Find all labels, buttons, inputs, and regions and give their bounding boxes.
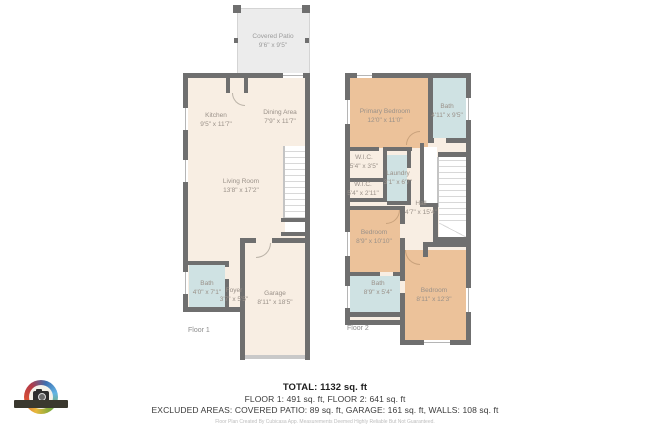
- window: [466, 98, 471, 120]
- floor-plan-page: Covered Patio 9'6" x 9'5" Kitchen 9'5" x…: [0, 0, 650, 433]
- window: [345, 286, 350, 308]
- floor-areas-text: FLOOR 1: 491 sq. ft, FLOOR 2: 641 sq. ft: [0, 394, 650, 404]
- exterior-wall: [305, 73, 310, 360]
- room-name: Kitchen: [200, 112, 232, 121]
- bath3-door-gap: [380, 272, 393, 276]
- hall-stair-wall: [420, 143, 424, 205]
- bath2-door-gap: [434, 138, 446, 143]
- company-logo-badge: [14, 380, 68, 426]
- room-label-foyer: Foyer 3'7" x 5'5": [220, 287, 248, 305]
- room-dims: 8'9" x 10'10": [356, 238, 392, 247]
- stair-winder: [439, 223, 466, 237]
- bedroom-bath-wall: [345, 272, 404, 276]
- room-dims: 4'7" x 15'4": [405, 209, 437, 218]
- room-label-living-room: Living Room 13'8" x 17'2": [223, 178, 259, 196]
- window: [183, 272, 188, 294]
- room-name: Primary Bedroom: [360, 108, 411, 117]
- room-dims: 3'7" x 5'5": [220, 296, 248, 305]
- window: [466, 288, 471, 312]
- room-dims: 9'6" x 9'5": [252, 42, 293, 51]
- logo-banner: [14, 400, 68, 408]
- window: [345, 100, 350, 124]
- room-dims: 8'11" x 12'3": [416, 296, 451, 305]
- room-label-hall: Hall 4'7" x 15'4": [405, 200, 437, 218]
- room-dims: 4'0" x 7'1": [193, 289, 221, 298]
- room-dims: 9'5" x 11'7": [200, 121, 232, 130]
- total-area-text: TOTAL: 1132 sq. ft: [0, 382, 650, 393]
- room-dims: 5'4" x 3'5": [350, 163, 378, 172]
- patio-post: [234, 38, 238, 43]
- room-label-kitchen: Kitchen 9'5" x 11'7": [200, 112, 232, 130]
- room-dims: 5'4" x 2'11": [347, 190, 379, 199]
- room-label-wic2: W.I.C. 5'4" x 2'11": [347, 181, 379, 199]
- room-dims: 12'0" x 11'0": [360, 117, 411, 126]
- room-name: Covered Patio: [252, 33, 293, 42]
- entry-wall-stub: [226, 78, 230, 93]
- room-name: Bedroom: [356, 229, 392, 238]
- staircase-floor1: [285, 146, 305, 220]
- room-label-bedroom2: Bedroom 8'11" x 12'3": [416, 287, 451, 305]
- staircase-floor2: [439, 155, 466, 223]
- room-dims: 7'9" x 11'7": [263, 118, 297, 127]
- floor2-tag: Floor 2: [347, 325, 369, 332]
- garage-door: [245, 355, 305, 359]
- patio-post: [305, 38, 309, 43]
- room-label-bedroom-mid: Bedroom 8'9" x 10'10": [356, 229, 392, 247]
- room-dims: 8'11" x 18'5": [257, 299, 292, 308]
- exterior-wall: [183, 307, 244, 312]
- bath3-door-gap: [400, 281, 405, 293]
- room-label-laundry: Laundry 3'1" x 6'7": [384, 170, 412, 188]
- room-label-bath3: Bath 8'9" x 5'4": [364, 280, 392, 298]
- room-name: Foyer: [220, 287, 248, 296]
- bedroom2-top-wall: [423, 242, 471, 247]
- window: [424, 340, 450, 345]
- room-name: Laundry: [384, 170, 412, 179]
- bath1-wall: [187, 261, 229, 265]
- room-name: Dining Area: [263, 109, 297, 118]
- room-label-primary-bedroom: Primary Bedroom 12'0" x 11'0": [360, 108, 411, 126]
- room-label-bath1: Bath 4'0" x 7'1": [193, 280, 221, 298]
- room-label-garage: Garage 8'11" x 18'5": [257, 290, 292, 308]
- room-label-bath2: Bath 4'11" x 9'5": [431, 103, 463, 121]
- patio-post: [233, 5, 241, 13]
- stair-wall: [281, 232, 305, 236]
- room-name: Bath: [431, 103, 463, 112]
- disclaimer-text: Floor Plan Created By Cubicasa App. Meas…: [0, 419, 650, 425]
- room-label-covered-patio: Covered Patio 9'6" x 9'5": [252, 33, 293, 51]
- room-name: Living Room: [223, 178, 259, 187]
- room-dims: 3'1" x 6'7": [384, 179, 412, 188]
- bath3-bottom-wall: [345, 312, 404, 317]
- room-name: Bedroom: [416, 287, 451, 296]
- bath1-door-gap: [225, 267, 229, 279]
- garage-top-wall: [240, 238, 256, 243]
- room-name: Hall: [405, 200, 437, 209]
- room-label-dining-area: Dining Area 7'9" x 11'7": [263, 109, 297, 127]
- patio-slider-window: [283, 73, 303, 78]
- patio-post: [302, 5, 310, 13]
- stair-landing: [285, 222, 305, 232]
- bedroom2-wall-stub: [423, 242, 428, 257]
- entry-wall-stub: [244, 78, 248, 93]
- room-name: Garage: [257, 290, 292, 299]
- window: [357, 73, 372, 78]
- garage-top-wall: [272, 238, 305, 243]
- room-label-wic1: W.I.C. 5'4" x 3'5": [350, 154, 378, 172]
- room-dims: 4'11" x 9'5": [431, 112, 463, 121]
- window: [345, 232, 350, 256]
- bedroom-wall: [345, 147, 379, 151]
- window: [183, 160, 188, 182]
- window: [183, 108, 188, 130]
- stair-top-wall: [438, 152, 471, 157]
- room-name: Bath: [193, 280, 221, 289]
- room-name: W.I.C.: [347, 181, 379, 190]
- excluded-areas-text: EXCLUDED AREAS: COVERED PATIO: 89 sq. ft…: [0, 405, 650, 415]
- floor1-tag: Floor 1: [188, 327, 210, 334]
- room-dims: 8'9" x 5'4": [364, 289, 392, 298]
- stair-void: [424, 147, 437, 205]
- room-dims: 13'8" x 17'2": [223, 187, 259, 196]
- area-summary: TOTAL: 1132 sq. ft FLOOR 1: 491 sq. ft, …: [0, 382, 650, 425]
- room-name: Bath: [364, 280, 392, 289]
- bedroom-door-gap: [400, 224, 405, 238]
- room-name: W.I.C.: [350, 154, 378, 163]
